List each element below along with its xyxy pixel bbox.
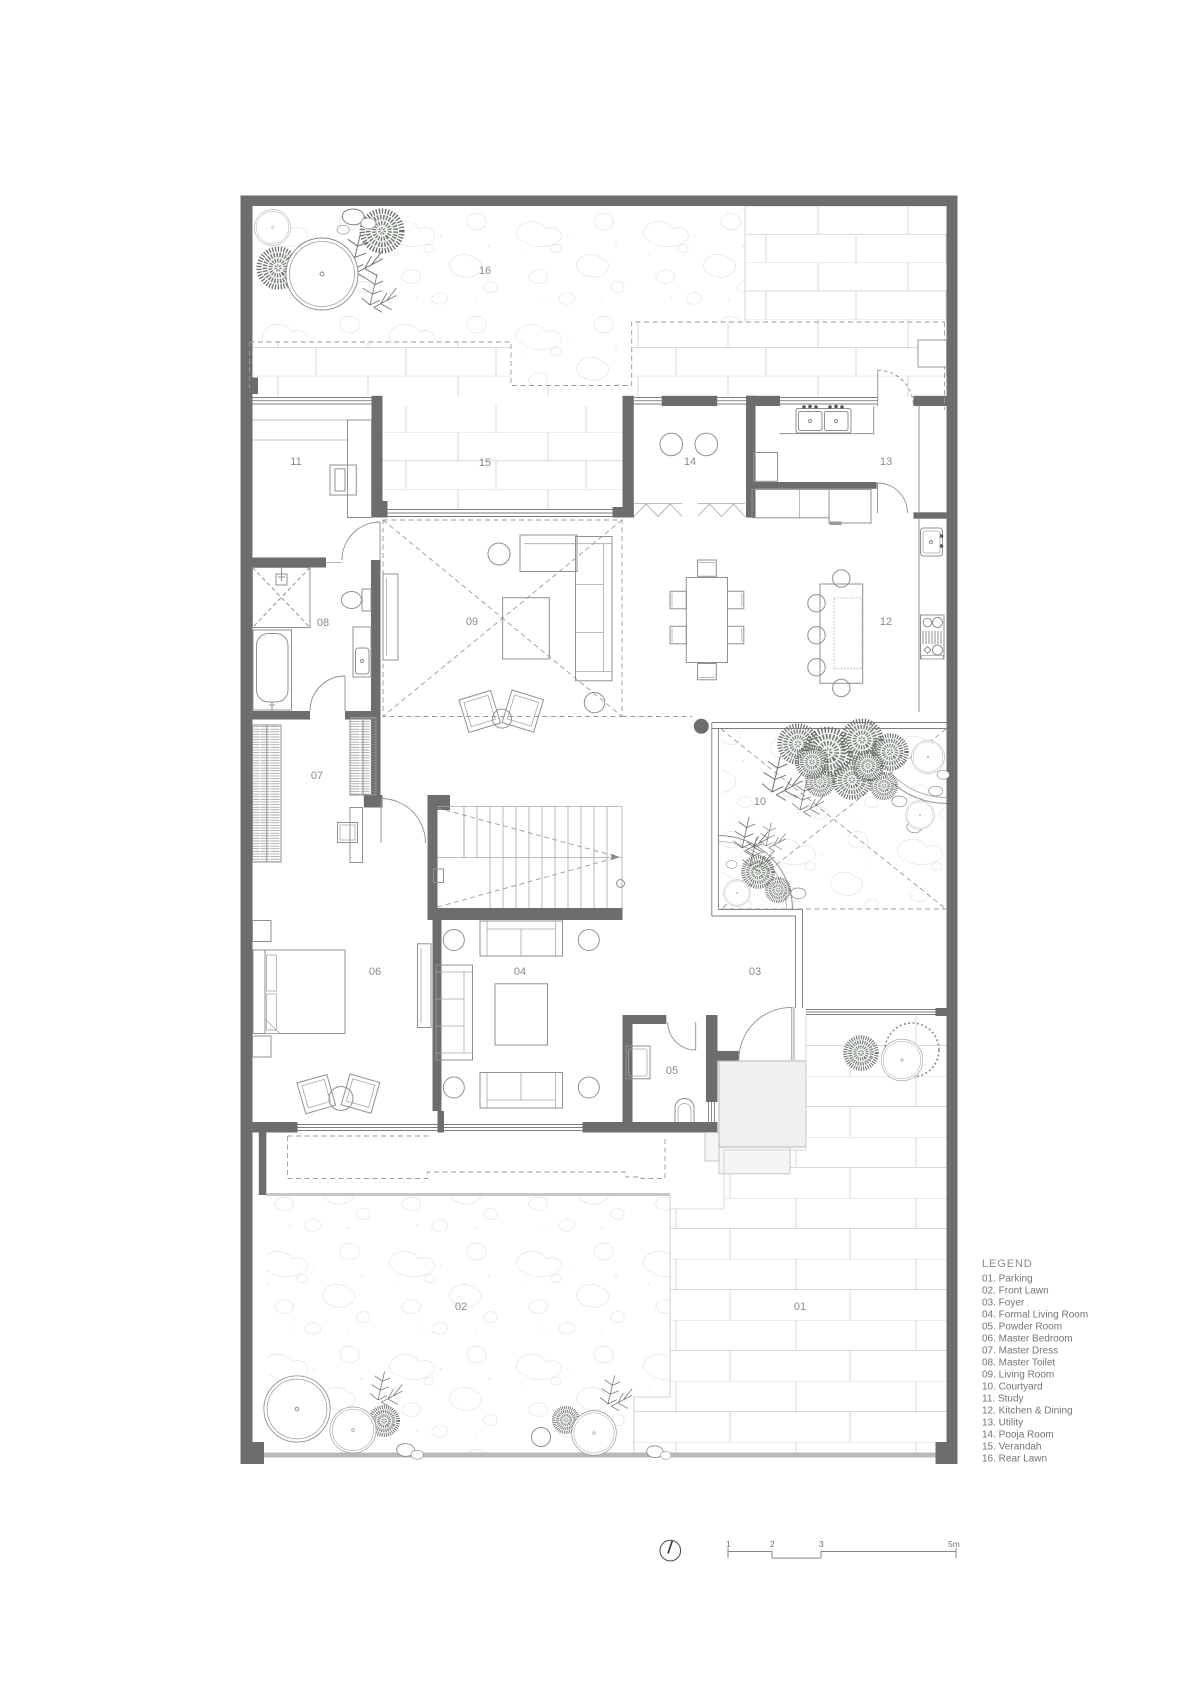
svg-text:01: 01 [794,1301,806,1313]
svg-text:15. Verandah: 15. Verandah [982,1442,1042,1453]
svg-text:02. Front Lawn: 02. Front Lawn [982,1286,1049,1297]
svg-text:09: 09 [466,616,478,628]
svg-text:14. Pooja Room: 14. Pooja Room [982,1430,1054,1441]
svg-text:16. Rear Lawn: 16. Rear Lawn [982,1454,1047,1465]
svg-text:02: 02 [455,1301,467,1313]
svg-text:3: 3 [819,1539,824,1549]
svg-text:09. Living Room: 09. Living Room [982,1370,1054,1381]
svg-text:11: 11 [290,456,301,468]
svg-text:11. Study: 11. Study [982,1394,1024,1405]
svg-text:06. Master Bedroom: 06. Master Bedroom [982,1334,1073,1345]
svg-text:07: 07 [311,770,323,782]
svg-text:04. Formal Living Room: 04. Formal Living Room [982,1310,1088,1321]
svg-text:10: 10 [754,796,766,808]
svg-text:08. Master Toilet: 08. Master Toilet [982,1358,1055,1369]
svg-text:14: 14 [684,456,696,468]
svg-text:2: 2 [770,1539,775,1549]
svg-text:12: 12 [880,616,892,628]
svg-text:05: 05 [666,1065,678,1077]
svg-text:10. Courtyard: 10. Courtyard [982,1382,1043,1393]
svg-text:1: 1 [726,1539,731,1549]
svg-text:5m: 5m [948,1539,960,1549]
svg-text:05. Powder Room: 05. Powder Room [982,1322,1062,1333]
svg-text:04: 04 [514,966,526,978]
svg-text:08: 08 [317,617,329,629]
svg-text:03. Foyer: 03. Foyer [982,1298,1025,1309]
svg-text:16: 16 [479,265,491,277]
svg-text:06: 06 [369,966,381,978]
svg-text:13. Utility: 13. Utility [982,1418,1023,1429]
svg-text:03: 03 [749,966,761,978]
svg-text:13: 13 [880,456,892,468]
svg-text:15: 15 [479,457,491,469]
svg-text:LEGEND: LEGEND [982,1258,1033,1270]
svg-text:07. Master Dress: 07. Master Dress [982,1346,1058,1357]
svg-text:12. Kitchen & Dining: 12. Kitchen & Dining [982,1406,1073,1417]
svg-text:01. Parking: 01. Parking [982,1274,1033,1285]
